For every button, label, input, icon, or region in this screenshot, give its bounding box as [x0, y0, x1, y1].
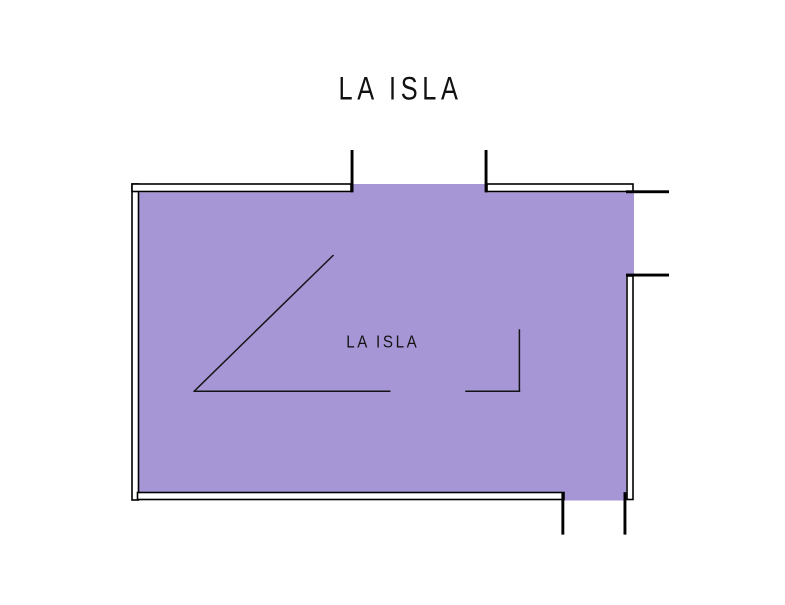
svg-text:LA ISLA: LA ISLA [346, 332, 419, 352]
svg-text:LA ISLA: LA ISLA [339, 70, 463, 107]
